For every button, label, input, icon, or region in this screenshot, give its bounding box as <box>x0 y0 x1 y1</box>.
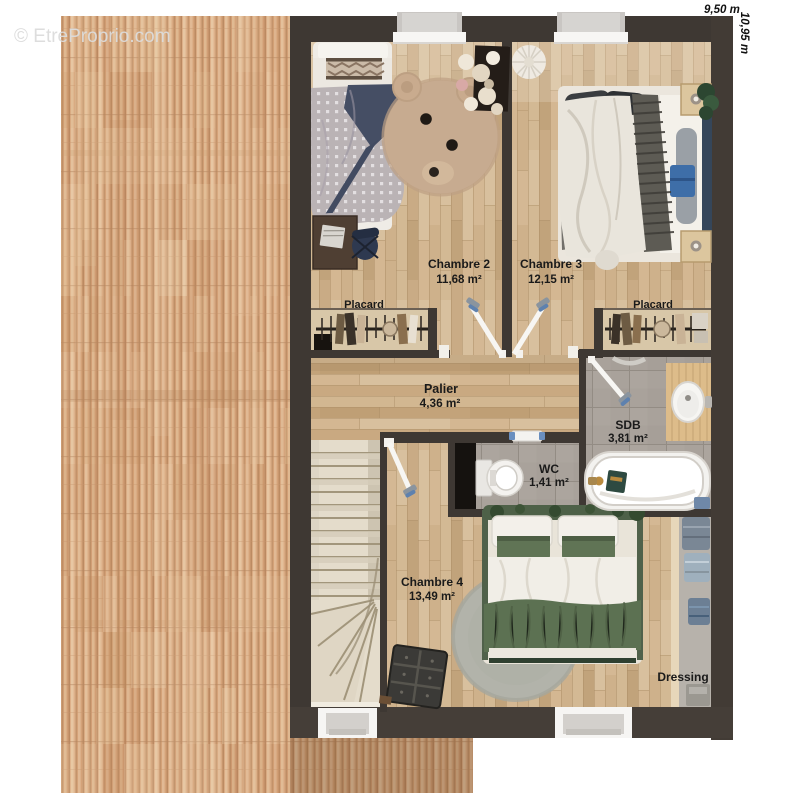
svg-text:© EtreProprio.com: © EtreProprio.com <box>14 26 171 47</box>
svg-text:Dressing: Dressing <box>657 670 708 684</box>
svg-text:10,95 m: 10,95 m <box>738 12 750 54</box>
svg-text:Chambre 2: Chambre 2 <box>428 257 490 271</box>
svg-text:Placard: Placard <box>633 299 673 311</box>
svg-text:3,81 m²: 3,81 m² <box>608 433 648 445</box>
svg-text:11,68 m²: 11,68 m² <box>436 274 482 286</box>
svg-text:12,15 m²: 12,15 m² <box>528 274 574 286</box>
svg-text:Chambre 3: Chambre 3 <box>520 257 582 271</box>
svg-text:WC: WC <box>539 462 559 476</box>
svg-text:Palier: Palier <box>424 382 458 396</box>
svg-text:Chambre 4: Chambre 4 <box>401 575 463 589</box>
svg-text:13,49 m²: 13,49 m² <box>409 591 455 603</box>
svg-text:SDB: SDB <box>615 418 641 432</box>
svg-text:Placard: Placard <box>344 299 384 311</box>
svg-text:4,36 m²: 4,36 m² <box>420 396 461 410</box>
svg-text:9,50 m: 9,50 m <box>704 4 740 16</box>
svg-text:1,41 m²: 1,41 m² <box>529 477 569 489</box>
